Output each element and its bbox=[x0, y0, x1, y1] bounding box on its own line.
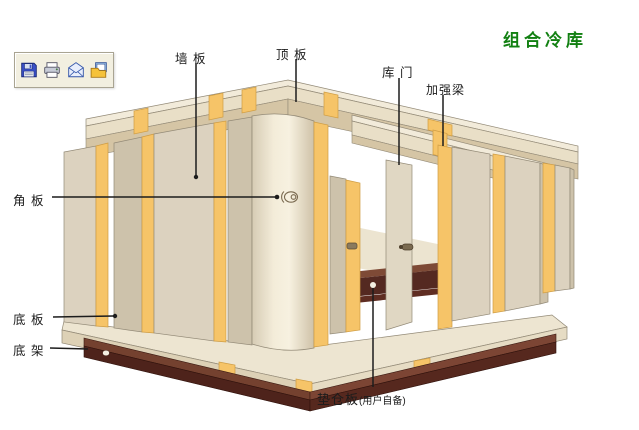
print-button[interactable] bbox=[41, 57, 63, 83]
wall-panel-shape bbox=[555, 165, 570, 291]
corner-panel-shape bbox=[252, 114, 314, 350]
label-top-panel: 顶 板 bbox=[276, 44, 307, 63]
bottom-panel-leader-line bbox=[53, 316, 113, 317]
export-image-icon bbox=[90, 61, 108, 79]
label-pallet-board-main: 垫仓板 bbox=[317, 392, 359, 407]
pallet-dot bbox=[370, 282, 376, 288]
roof-tab bbox=[242, 87, 256, 113]
wall-panel-shape bbox=[505, 156, 540, 311]
roof-tab bbox=[134, 108, 148, 134]
wall-panels-left bbox=[64, 117, 252, 345]
roof-tab bbox=[209, 93, 223, 120]
door-jamb bbox=[330, 176, 346, 334]
label-bottom-panel: 底 板 bbox=[13, 309, 44, 328]
label-pallet-board: 垫仓板(用户自备) bbox=[317, 389, 406, 408]
printer-icon bbox=[43, 61, 61, 79]
wall-panel-shape bbox=[452, 147, 490, 321]
label-bottom-frame: 底 架 bbox=[13, 340, 44, 359]
label-pallet-board-note: (用户自备) bbox=[359, 396, 406, 407]
app-window: 组合冷库 墙 板 顶 板 库 门 加强梁 角 板 底 板 底 架 垫仓板(用户自… bbox=[0, 0, 639, 430]
save-button[interactable] bbox=[18, 57, 40, 83]
floppy-disk-icon bbox=[20, 61, 38, 79]
wall-panel-shape bbox=[64, 146, 96, 326]
label-corner-panel: 角 板 bbox=[13, 190, 44, 209]
envelope-icon bbox=[67, 61, 85, 79]
door-handle bbox=[402, 244, 413, 250]
toolbar bbox=[14, 52, 114, 88]
wall-panel-shape bbox=[228, 117, 252, 345]
door-hinge bbox=[347, 243, 357, 249]
label-door: 库 门 bbox=[382, 62, 413, 81]
export-button[interactable] bbox=[88, 57, 110, 83]
roof-tab bbox=[324, 92, 338, 118]
door-handle-knob bbox=[399, 245, 403, 249]
wall-panel-shape bbox=[154, 123, 214, 341]
label-reinforcement-beam: 加强梁 bbox=[426, 81, 465, 98]
bottom-frame-leader-line bbox=[50, 348, 88, 349]
page-title: 组合冷库 bbox=[503, 26, 587, 51]
frame-hole bbox=[103, 350, 110, 356]
label-wall-panel: 墙 板 bbox=[175, 48, 206, 67]
wall-panel-shape bbox=[114, 137, 142, 332]
mail-button[interactable] bbox=[65, 57, 87, 83]
